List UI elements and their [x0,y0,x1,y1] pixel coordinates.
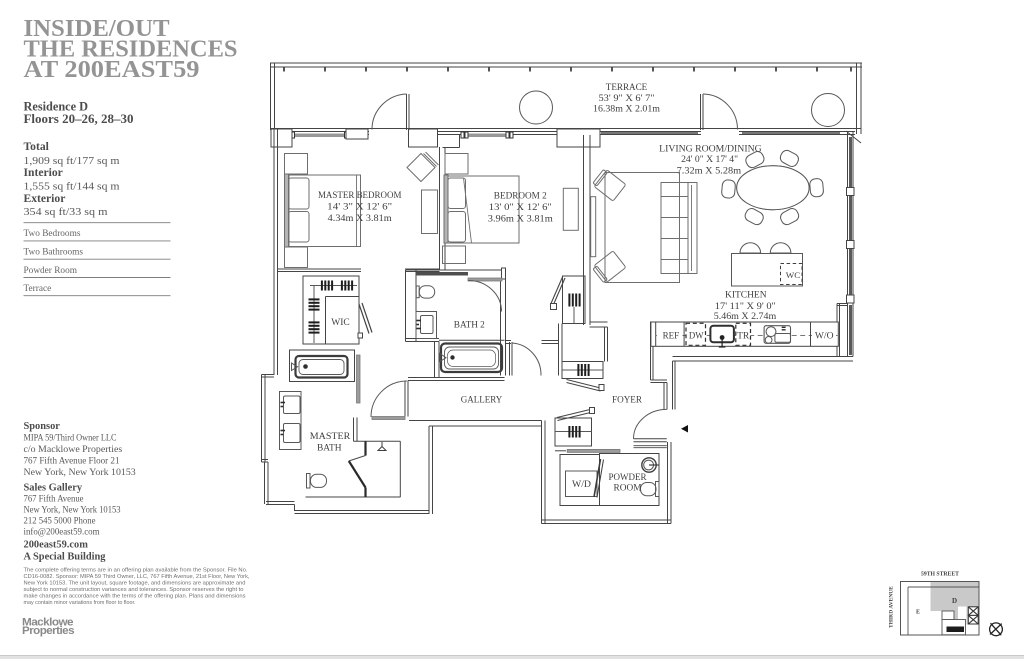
svg-text:W/D: W/D [572,480,591,490]
svg-text:Two Bedrooms: Two Bedrooms [24,229,81,239]
svg-text:Interior: Interior [24,166,63,179]
svg-text:767 Fifth Avenue: 767 Fifth Avenue [24,494,85,505]
svg-text:Total: Total [24,140,50,153]
svg-text:17' 11" X 9' 0": 17' 11" X 9' 0" [715,302,776,312]
svg-text:New York, New York 10153: New York, New York 10153 [24,467,136,478]
svg-text:WC: WC [786,271,801,280]
svg-text:REF: REF [663,330,680,340]
svg-text:Sponsor: Sponsor [24,421,61,432]
svg-text:New York, New York 10153: New York, New York 10153 [24,505,121,516]
svg-text:59TH STREET: 59TH STREET [921,571,960,578]
svg-text:THIRD AVENUE: THIRD AVENUE [889,586,895,628]
svg-text:BATH 2: BATH 2 [454,320,485,331]
svg-text:BEDROOM 2: BEDROOM 2 [494,191,547,202]
svg-text:Properties: Properties [22,625,74,637]
svg-text:Two Bathrooms: Two Bathrooms [24,248,84,258]
svg-text:New York 10153. The unit layou: New York 10153. The unit layout, square … [24,581,246,587]
svg-text:16.38m X 2.01m: 16.38m X 2.01m [593,105,661,115]
svg-text:DW: DW [689,330,704,340]
svg-text:53' 9" X 6' 7": 53' 9" X 6' 7" [599,94,655,104]
svg-text:1,555 sq ft/144 sq m: 1,555 sq ft/144 sq m [24,181,120,193]
svg-text:Floors 20–26, 28–30: Floors 20–26, 28–30 [24,112,134,126]
svg-text:14' 3" X 12' 6": 14' 3" X 12' 6" [327,203,392,213]
svg-text:The complete offering terms ar: The complete offering terms are in an of… [24,568,248,574]
svg-text:W/O: W/O [815,330,834,340]
svg-text:E: E [916,610,920,616]
svg-text:13' 0" X 12' 6": 13' 0" X 12' 6" [489,203,552,213]
svg-text:FOYER: FOYER [612,395,643,406]
svg-text:CD16-0082. Sponsor: MIPA 59 Th: CD16-0082. Sponsor: MIPA 59 Third Owner,… [24,574,250,580]
svg-text:3.96m X 3.81m: 3.96m X 3.81m [488,215,554,225]
svg-text:Powder Room: Powder Room [24,266,78,276]
svg-text:POWDER: POWDER [609,473,648,483]
svg-text:Sales Gallery: Sales Gallery [24,483,83,494]
svg-text:A Special Building: A Special Building [24,552,107,563]
svg-text:MASTER: MASTER [310,431,351,442]
svg-text:ROOM: ROOM [614,484,643,494]
svg-text:TERRACE: TERRACE [606,82,648,93]
svg-text:WIC: WIC [331,317,350,328]
svg-text:1,909 sq ft/177 sq m: 1,909 sq ft/177 sq m [24,155,120,167]
svg-text:4.34m X 3.81m: 4.34m X 3.81m [328,214,393,224]
svg-text:24' 0" X 17' 4": 24' 0" X 17' 4" [681,155,738,165]
svg-text:354 sq ft/33 sq m: 354 sq ft/33 sq m [24,206,108,218]
svg-text:Exterior: Exterior [24,192,66,205]
svg-text:c/o Macklowe Properties: c/o Macklowe Properties [24,444,123,455]
svg-text:7.32m X 5.28m: 7.32m X 5.28m [677,167,742,177]
svg-text:767 Fifth Avenue Floor 21: 767 Fifth Avenue Floor 21 [24,456,120,467]
svg-text:KITCHEN: KITCHEN [725,290,767,301]
svg-text:info@200east59.com: info@200east59.com [24,527,100,538]
svg-text:LIVING ROOM/DINING: LIVING ROOM/DINING [659,144,762,155]
svg-text:212 545 5000 Phone: 212 545 5000 Phone [24,516,97,527]
svg-text:D: D [952,597,957,605]
svg-text:BATH: BATH [317,443,342,454]
svg-text:MIPA 59/Third Owner LLC: MIPA 59/Third Owner LLC [24,433,117,444]
svg-text:may contain minor variations f: may contain minor variations from floor … [24,600,136,606]
svg-text:Terrace: Terrace [24,284,52,294]
svg-text:AT 200EAST59: AT 200EAST59 [24,57,200,83]
svg-text:200east59.com: 200east59.com [24,540,89,551]
svg-text:TR: TR [737,330,749,340]
svg-text:5.46m X 2.74m: 5.46m X 2.74m [714,312,777,322]
svg-text:subject to normal construction: subject to normal construction variances… [24,587,245,593]
svg-text:GALLERY: GALLERY [461,395,503,406]
svg-text:make changes in accordance wit: make changes in accordance with the term… [24,594,246,600]
svg-text:MASTER BEDROOM: MASTER BEDROOM [318,190,402,201]
